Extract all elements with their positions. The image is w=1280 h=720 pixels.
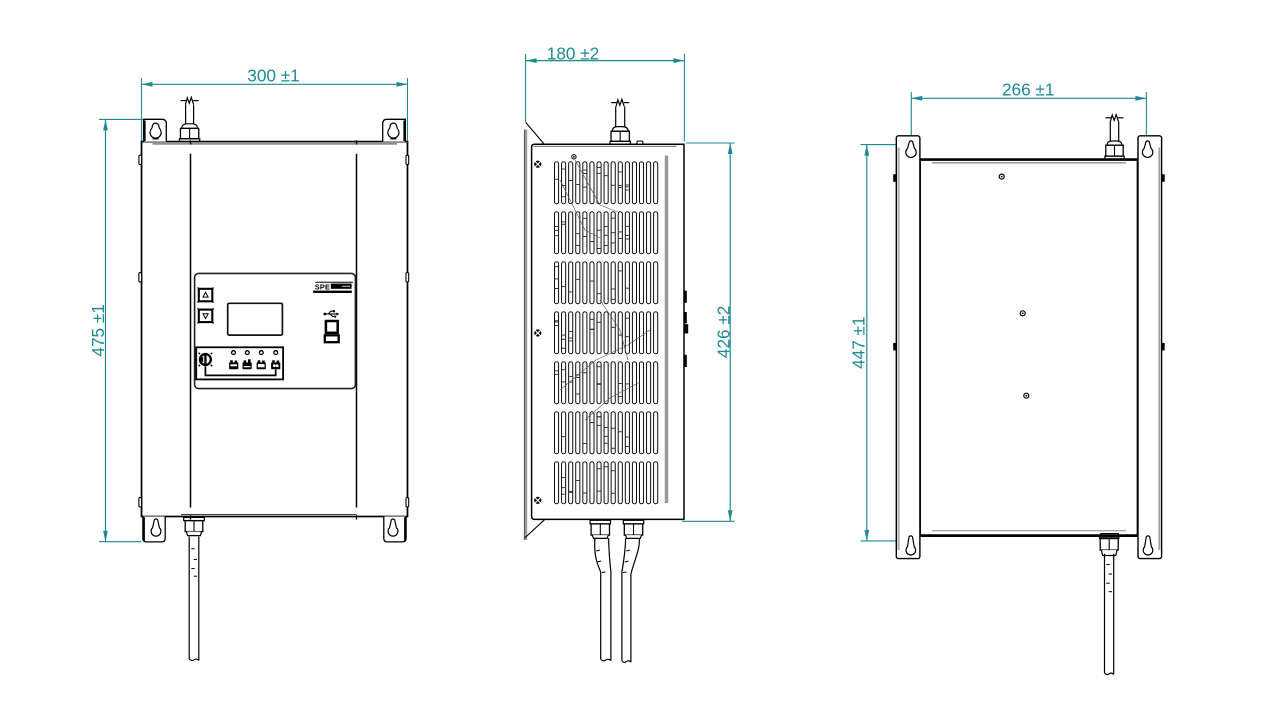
svg-text:300 ±1: 300 ±1 xyxy=(247,66,299,86)
svg-text:SPE: SPE xyxy=(315,282,330,291)
svg-text:475 ±1: 475 ±1 xyxy=(88,304,108,356)
svg-text:266 ±1: 266 ±1 xyxy=(1002,80,1054,100)
svg-text:426 ±2: 426 ±2 xyxy=(714,306,734,358)
svg-text:447 ±1: 447 ±1 xyxy=(848,316,868,368)
svg-text:180 ±2: 180 ±2 xyxy=(547,43,599,63)
